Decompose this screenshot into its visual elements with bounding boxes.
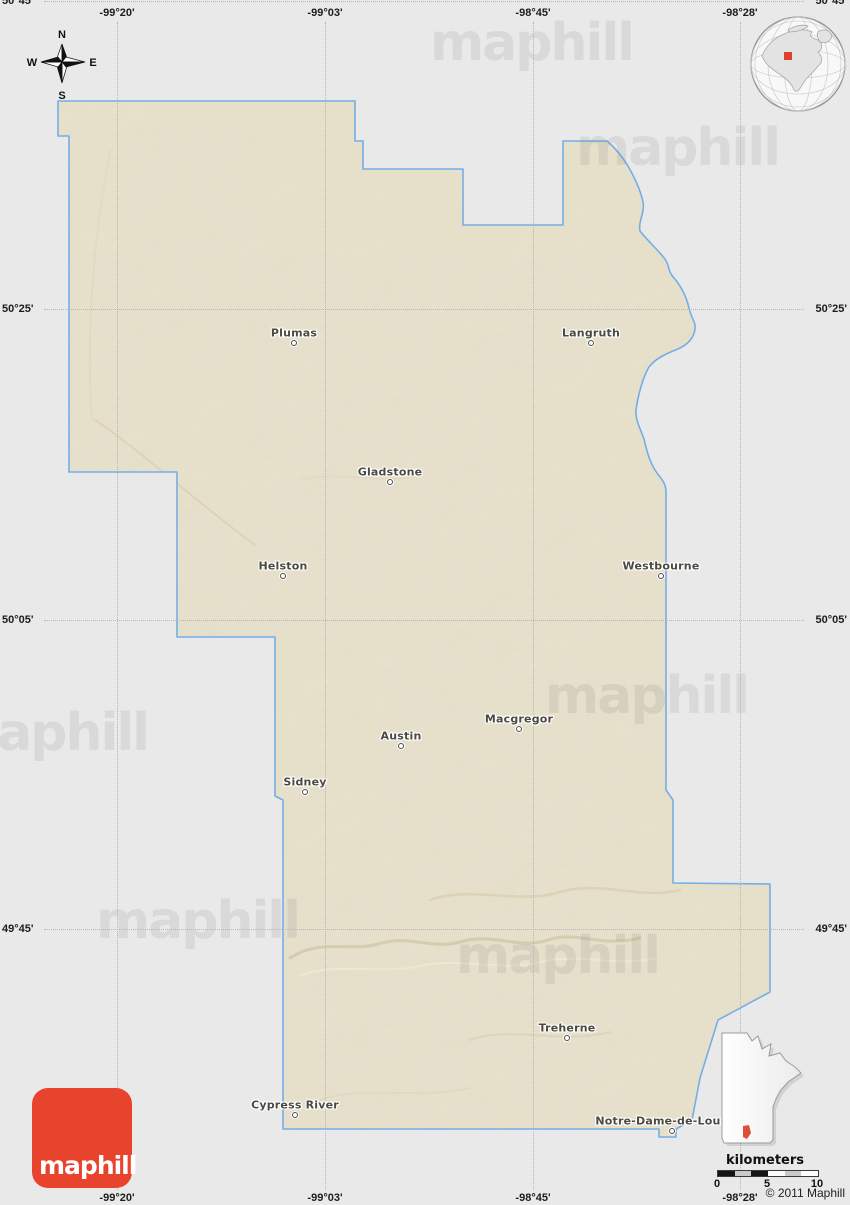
watermark: maphill (576, 118, 779, 178)
compass-rose: N S E W (20, 22, 110, 107)
compass-s-label: S (58, 90, 65, 102)
watermark: maphill (430, 13, 633, 73)
copyright-text: © 2011 Maphill (766, 1186, 845, 1200)
compass-n-label: N (58, 29, 66, 41)
scalebar-title: kilometers (726, 1153, 804, 1168)
scalebar-segment (785, 1171, 802, 1176)
globe-location-marker (784, 52, 792, 60)
scalebar-tick: 0 (714, 1178, 720, 1190)
scalebar-segment (735, 1171, 752, 1176)
manitoba-shape (722, 1033, 801, 1143)
scalebar-segment (751, 1171, 768, 1176)
watermark: maphill (456, 926, 659, 986)
scalebar-segment (768, 1171, 785, 1176)
compass-w-label: W (27, 57, 38, 69)
scalebar-segment (801, 1171, 818, 1176)
compass-e-label: E (89, 57, 96, 69)
scalebar-bar (717, 1170, 819, 1177)
watermark: maphill (545, 666, 748, 726)
scalebar-segment (718, 1171, 735, 1176)
maphill-logo: maphill (32, 1088, 132, 1188)
manitoba-inset (700, 1020, 850, 1170)
scalebar: kilometers 0510 (713, 1153, 825, 1189)
watermark: maphill (96, 891, 299, 951)
globe-locator (748, 14, 848, 114)
watermark: maphill (0, 703, 148, 763)
map-page: maphillmaphillmaphillmaphillmaphillmaphi… (0, 0, 850, 1205)
maphill-logo-text: maphill (39, 1151, 136, 1180)
